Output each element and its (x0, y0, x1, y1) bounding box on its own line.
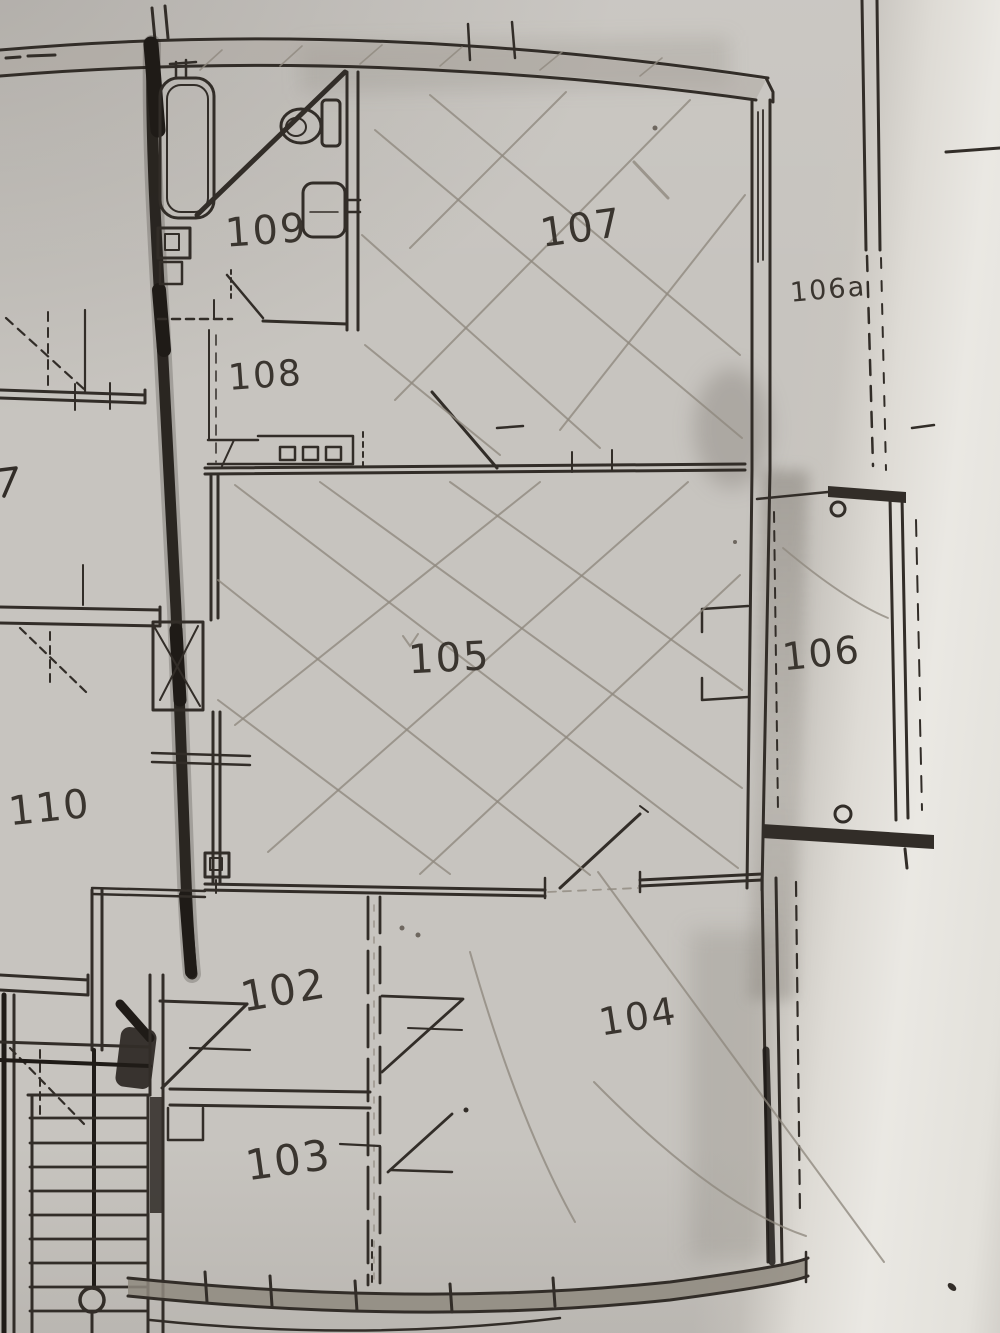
door-107 (363, 392, 523, 468)
room-104 (400, 872, 885, 1262)
door-103-104 (340, 1108, 469, 1173)
pencil-hatching-107 (362, 92, 745, 455)
room-label-106a: 106a (789, 271, 868, 309)
wall-notch (168, 1108, 203, 1140)
door-swing-110-mid (20, 565, 86, 692)
ink-fleck (946, 1281, 958, 1292)
room-label-105: 105 (407, 633, 492, 683)
room-label-109: 109 (224, 205, 309, 257)
door-109-108 (214, 270, 263, 318)
room-label-108: 108 (227, 353, 304, 399)
room-label-104: 104 (596, 989, 680, 1045)
room-107 (205, 92, 745, 474)
northeast-wall (862, 0, 1000, 470)
pencil-marks-104 (400, 872, 885, 1262)
room-label-106: 106 (780, 627, 863, 679)
door-105-104 (560, 806, 648, 888)
room-102 (160, 1001, 370, 1140)
room-label-110: 110 (6, 781, 93, 835)
door-102 (160, 1001, 250, 1088)
room-109-bathroom (158, 60, 360, 330)
hall-110 (0, 310, 160, 1126)
bottom-exterior-wall (128, 1240, 958, 1331)
bathtub (160, 60, 214, 218)
door-102-104 (382, 996, 463, 1072)
room-label-103: 103 (242, 1130, 334, 1191)
column (205, 853, 229, 893)
door-swing-110-top (6, 310, 85, 392)
floor-plan-drawing: 109 107 106a 108 105 106 110 102 104 103 (0, 0, 1000, 1333)
shelf-squares (280, 447, 341, 460)
sink (303, 183, 360, 237)
room-label-102: 102 (237, 958, 330, 1021)
floor-plan-photo: 109 107 106a 108 105 106 110 102 104 103 (0, 0, 1000, 1333)
door-105-balcony (702, 606, 748, 700)
pencil-mark-7 (0, 468, 16, 496)
